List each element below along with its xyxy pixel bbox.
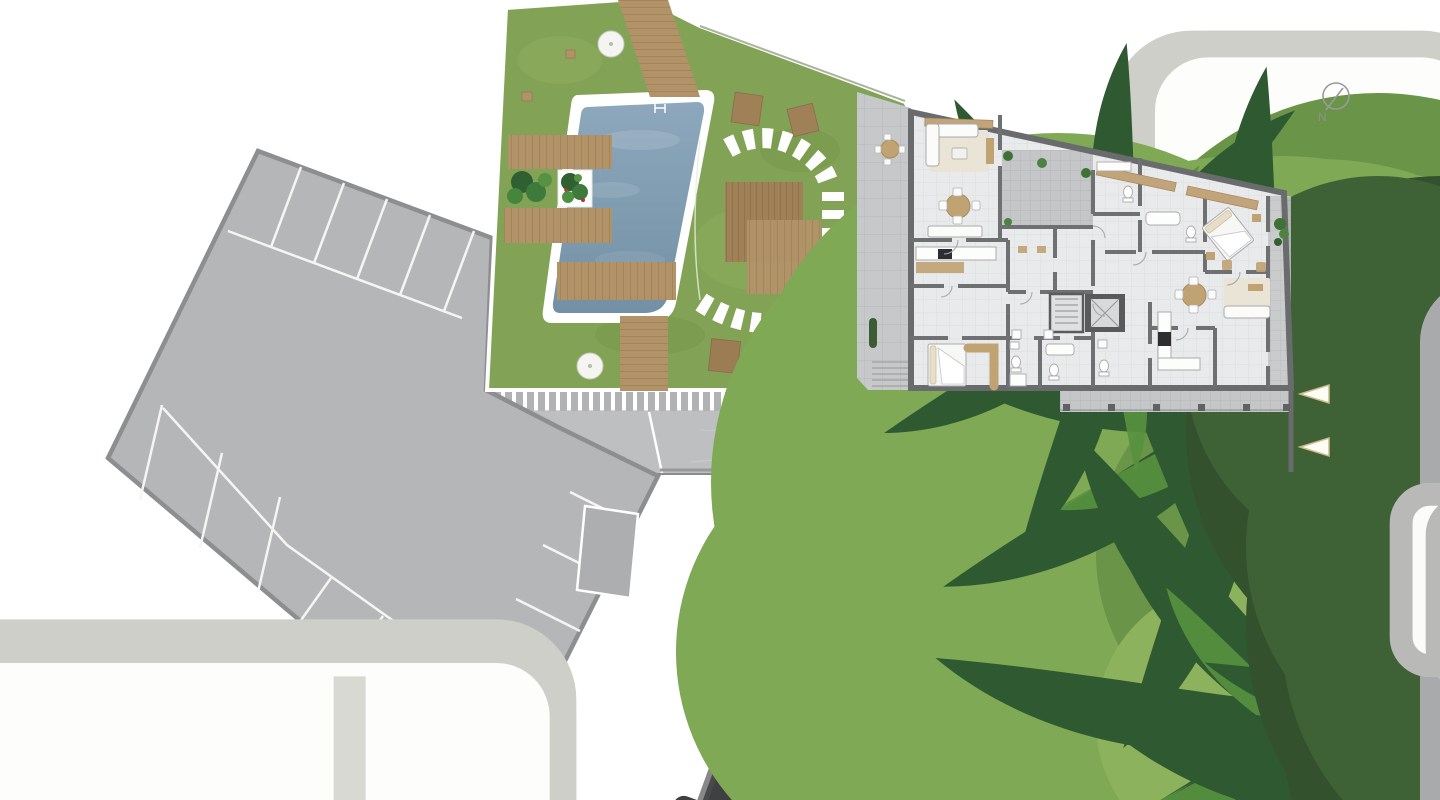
site-plan-page: N <box>0 0 1440 800</box>
stair-elevator-core <box>1050 294 1125 332</box>
deck-bottom <box>620 316 668 391</box>
sofa-right <box>1224 306 1270 318</box>
washer <box>1012 330 1021 339</box>
terrace-top-center <box>1002 150 1093 227</box>
deck-pool-bridge <box>557 262 676 300</box>
bed-double-bottom-left <box>928 344 966 386</box>
ramp-marking <box>577 506 638 598</box>
north-label: N <box>1318 110 1327 124</box>
terrace-bottom-band <box>1060 388 1291 412</box>
site-plan-drawing: N <box>0 0 1440 800</box>
bench-seat <box>928 226 982 237</box>
coffee-table <box>952 148 967 159</box>
kitchen-counter-left <box>916 247 996 260</box>
deck-left-upper <box>508 135 612 169</box>
kitchen-island <box>916 262 964 273</box>
deck-left-lower <box>504 208 612 243</box>
tv-right <box>1248 284 1263 291</box>
living-rug-right <box>1224 278 1270 306</box>
washer-2 <box>1044 330 1053 339</box>
tv-unit <box>986 138 994 164</box>
